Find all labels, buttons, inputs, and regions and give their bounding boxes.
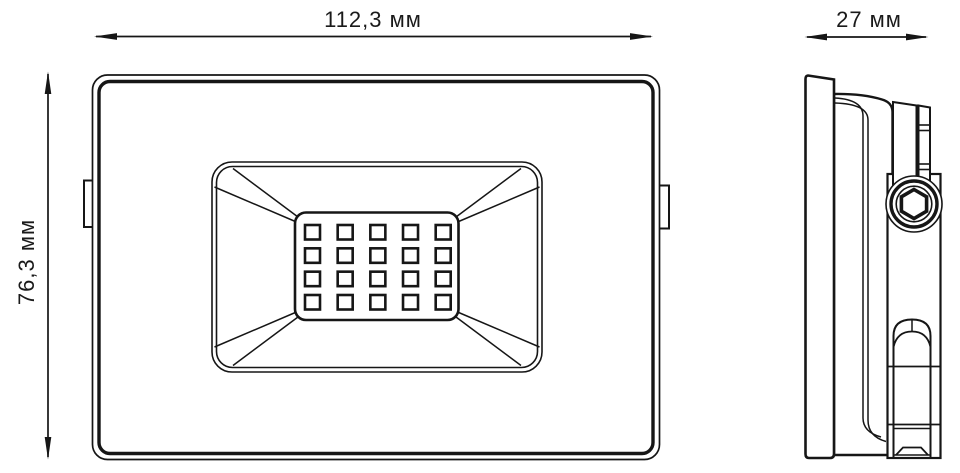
side-view xyxy=(806,76,943,459)
arrowhead-right-icon xyxy=(906,34,929,41)
arrowhead-up-icon xyxy=(45,72,52,95)
led-chip xyxy=(305,248,320,263)
led-chip xyxy=(436,295,451,310)
led-chip xyxy=(305,225,320,240)
led-chip xyxy=(338,272,353,287)
dimension-height-label: 76,3 мм xyxy=(14,219,39,305)
dimension-depth xyxy=(805,34,929,41)
led-chip xyxy=(403,248,418,263)
dimension-height xyxy=(45,72,52,460)
led-chip xyxy=(403,225,418,240)
led-chip xyxy=(338,248,353,263)
led-chip xyxy=(403,295,418,310)
led-chip xyxy=(338,295,353,310)
dimension-width xyxy=(94,33,653,40)
bracket-fin-right xyxy=(919,106,931,183)
hinge-bolt xyxy=(886,176,942,232)
arrowhead-left-icon xyxy=(805,34,828,41)
led-chip xyxy=(436,248,451,263)
led-chip xyxy=(338,225,353,240)
led-chip xyxy=(436,272,451,287)
bolt-outer-circle xyxy=(886,176,942,232)
floodlight-dimensional-drawing: 112,3 мм 27 мм 76,3 мм xyxy=(0,0,960,473)
led-chip xyxy=(305,272,320,287)
bracket-plate-middle xyxy=(893,102,917,186)
arrowhead-left-icon xyxy=(94,33,117,40)
arrowhead-down-icon xyxy=(45,437,52,460)
led-chip xyxy=(305,295,320,310)
led-chip xyxy=(370,225,385,240)
led-chip xyxy=(370,248,385,263)
arrowhead-right-icon xyxy=(630,33,653,40)
dimension-width-label: 112,3 мм xyxy=(324,7,422,32)
led-chip xyxy=(370,272,385,287)
drawing-svg: 112,3 мм 27 мм 76,3 мм xyxy=(0,0,960,473)
led-chip xyxy=(370,295,385,310)
bracket-fin-body xyxy=(919,106,931,183)
led-chip xyxy=(403,272,418,287)
front-view xyxy=(84,75,669,460)
dimension-depth-label: 27 мм xyxy=(836,7,902,32)
led-chip xyxy=(436,225,451,240)
side-face-plate xyxy=(806,76,835,459)
